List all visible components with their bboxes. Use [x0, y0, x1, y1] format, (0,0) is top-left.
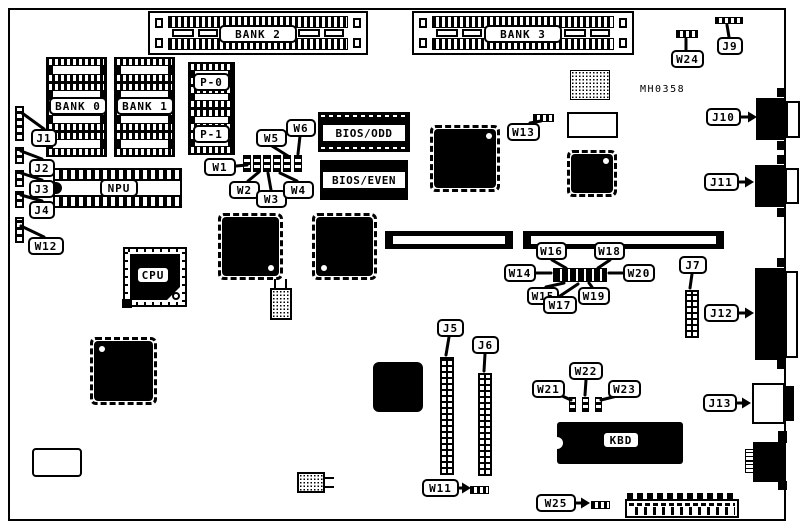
j6-header: [478, 373, 492, 476]
callout-j9: J9: [717, 37, 743, 55]
callout-w21: W21: [532, 380, 565, 398]
pin1-dot: [321, 265, 327, 271]
callout-j7: J7: [679, 256, 707, 274]
jumper-w25: [591, 501, 610, 509]
callout-w25: W25: [536, 494, 576, 512]
chip-qfp-2: [567, 150, 617, 197]
callout-j11: J11: [704, 173, 739, 191]
simm-latch: [419, 38, 427, 48]
jumper-w1: [243, 155, 251, 172]
simm-slot-bar: [564, 29, 586, 37]
callout-w13: W13: [507, 123, 540, 141]
callout-j13: J13: [703, 394, 737, 412]
simm-slot-bar: [324, 29, 344, 37]
pin1-dot: [486, 133, 492, 139]
oscillator: [570, 70, 610, 100]
simm-slot-bar: [590, 29, 610, 37]
simm-latch: [619, 38, 627, 48]
dip-chip-row: [114, 58, 175, 82]
part-number: MH0358: [640, 84, 685, 95]
crystal-lead: [325, 486, 334, 488]
pin1-dot: [99, 346, 105, 352]
dip-chip-row: [114, 132, 175, 156]
jumper-w23: [595, 397, 602, 412]
p1-label: P-1: [193, 125, 230, 143]
j12-shell: [785, 271, 798, 358]
callout-w1: W1: [204, 158, 236, 176]
edge-tab: [777, 141, 786, 150]
jumper-w13: [533, 114, 554, 122]
br-connector-step: [778, 481, 787, 490]
cpu-label: CPU: [136, 266, 170, 284]
callout-w23: W23: [608, 380, 641, 398]
j12-connector: [755, 268, 785, 360]
jumper-block-w14-w20: [553, 268, 607, 282]
jumper-w11: [470, 486, 489, 494]
kbd-label: KBD: [602, 431, 640, 449]
jumper-w4: [273, 155, 281, 172]
callout-w5: W5: [256, 129, 287, 147]
callout-j5: J5: [437, 319, 464, 337]
npu-label: NPU: [100, 179, 138, 197]
callout-w22: W22: [569, 362, 603, 380]
jumper-w5: [283, 155, 291, 172]
jumper-w24: [676, 30, 698, 38]
bios-dash: [321, 115, 407, 117]
j10-shell: [786, 101, 800, 138]
callout-j10: J10: [706, 108, 741, 126]
jumper-w3: [263, 155, 271, 172]
chip-plcc: [373, 362, 423, 412]
npu-notch: [55, 182, 62, 194]
j13-edge-block: [785, 386, 794, 421]
j7-header: [685, 290, 699, 338]
callout-j2: J2: [29, 159, 55, 177]
j1-header: [15, 106, 24, 141]
callout-w11: W11: [422, 479, 459, 497]
j11-connector: [755, 165, 785, 207]
callout-w12: W12: [28, 237, 64, 255]
jumper-w2: [253, 155, 261, 172]
bank1-label: BANK 1: [116, 97, 174, 115]
callout-w19: W19: [578, 287, 610, 305]
simm-latch: [155, 38, 163, 48]
crystal-pad: [567, 112, 618, 138]
bios-odd-label: BIOS/ODD: [323, 125, 405, 141]
chip-qfp-3: [218, 213, 283, 280]
j13-connector: [752, 383, 785, 424]
callout-w14: W14: [504, 264, 536, 282]
power-body: [625, 499, 739, 518]
crystal-2: [297, 472, 325, 493]
j4-header: [15, 191, 24, 208]
j3-header: [15, 170, 24, 187]
jumper-w22: [582, 397, 589, 412]
edge-tab: [777, 88, 786, 97]
jumper-w6: [294, 155, 302, 172]
empty-pad: [32, 448, 82, 477]
simm-slot-bar: [298, 29, 320, 37]
edge-tab: [777, 258, 786, 267]
simm-latch: [619, 18, 627, 28]
chip-qfp-4: [312, 213, 377, 280]
crystal-lead: [325, 477, 334, 479]
callout-w18: W18: [594, 242, 625, 260]
callout-j4: J4: [29, 201, 55, 219]
edge-tab: [777, 208, 786, 217]
chip-qfp-1: [430, 125, 500, 192]
j10-connector: [756, 98, 786, 140]
w12-header: [15, 217, 24, 243]
bios-even-label: BIOS/EVEN: [323, 172, 405, 188]
j2-header: [15, 147, 24, 164]
pin1-dot: [268, 265, 274, 271]
j5-header: [440, 357, 454, 475]
cpu-socket-tab: [122, 299, 132, 308]
callout-j12: J12: [704, 304, 739, 322]
callout-w20: W20: [623, 264, 655, 282]
dip-chip-row: [46, 58, 107, 82]
bios-dash: [321, 147, 407, 149]
simm-latch: [419, 18, 427, 28]
bank0-label: BANK 0: [49, 97, 107, 115]
callout-j1: J1: [31, 129, 57, 147]
callout-j3: J3: [29, 180, 55, 198]
j9-header: [715, 17, 743, 24]
edge-tab: [777, 360, 786, 369]
edge-tab: [777, 155, 786, 164]
power-connector: [625, 493, 739, 518]
simm-latch: [353, 18, 361, 28]
simm-latch: [353, 38, 361, 48]
simm-slot-bar: [462, 29, 482, 37]
jumper-w21: [569, 397, 576, 412]
callout-j6: J6: [472, 336, 499, 354]
bank3-label: BANK 3: [484, 25, 562, 43]
simm-slot-bar: [172, 29, 194, 37]
br-connector-pins: [745, 449, 754, 461]
slot-bar-1: [385, 231, 513, 249]
callout-w24: W24: [671, 50, 704, 68]
simm-latch: [155, 18, 163, 28]
callout-w4: W4: [283, 181, 314, 199]
br-connector: [753, 442, 786, 482]
chip-qfp-5: [90, 337, 157, 405]
motherboard-layout-diagram: BANK 2 BANK 3 BANK 0 BANK 1 P-0 P-1 NPU …: [0, 0, 804, 527]
kbd-notch: [556, 437, 563, 449]
pin1-dot: [603, 158, 609, 164]
callout-w16: W16: [536, 242, 567, 260]
simm-slot-bar: [436, 29, 458, 37]
callout-w17: W17: [543, 296, 577, 314]
simm-slot-bar: [198, 29, 218, 37]
bank2-label: BANK 2: [219, 25, 297, 43]
p0-label: P-0: [193, 73, 230, 91]
br-connector-step: [778, 431, 787, 443]
crystal-1: [270, 288, 292, 320]
j11-shell: [785, 168, 799, 204]
callout-w6: W6: [286, 119, 316, 137]
cpu-pin1-marker: [172, 292, 180, 300]
br-connector-pins: [745, 461, 754, 473]
